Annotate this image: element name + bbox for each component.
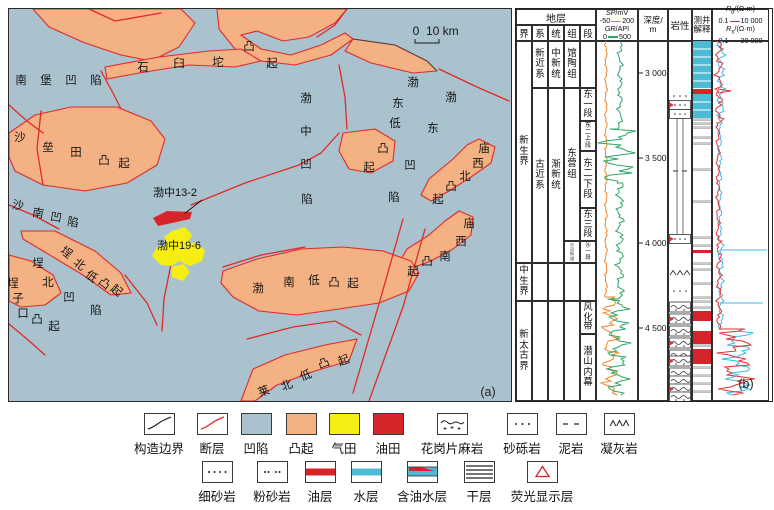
era-label: 新生界	[519, 136, 529, 168]
well-log-panel-b: 地层 界 系 统 组 段 SP/mV -50200 GR/API 0500 深度…	[515, 8, 773, 402]
map-label-char: 西	[455, 236, 467, 248]
legend-swatch-gneiss	[437, 413, 468, 435]
map-label-char: 西	[472, 158, 484, 170]
map-label-char: 起	[407, 265, 419, 278]
header-system: 系	[532, 25, 548, 41]
map-label-char: 凸	[445, 181, 457, 193]
member-label: 潜山内幕	[583, 347, 593, 389]
map-label-char: 庙	[463, 216, 475, 230]
map-label-char: 北	[459, 170, 471, 183]
map-label-char: 埕	[32, 257, 44, 270]
map-label-char: 北	[42, 276, 54, 289]
panel-a-label: (a)	[480, 385, 495, 399]
map-label-char: 田	[70, 147, 82, 159]
header-sp-gr: SP/mV -50200 GR/API 0500	[596, 9, 638, 41]
map-label-char: 堡	[40, 73, 52, 87]
map-label-char: 陷	[90, 73, 102, 87]
formation-cell: 东营组	[564, 88, 580, 241]
era-cell: 中生界	[516, 263, 532, 301]
formation-cell	[564, 301, 580, 401]
era-label: 新太古界	[519, 330, 529, 372]
era-cell: 新生界	[516, 41, 532, 263]
map-label-char: 渤	[300, 92, 312, 105]
member-cell	[580, 41, 596, 88]
depth-track-cell	[638, 41, 668, 401]
header-depth: 深度/ m	[638, 9, 668, 41]
series-cell: 渐新统	[548, 88, 564, 263]
map-label-char: 起	[266, 57, 278, 70]
series-cell	[548, 263, 564, 301]
member-cell: 潜山内幕	[580, 334, 596, 401]
member-label: 东二下段	[583, 159, 593, 201]
era-cell: 新太古界	[516, 301, 532, 401]
system-cell	[532, 263, 548, 301]
member-cell	[580, 263, 596, 301]
header-formation: 组	[564, 25, 580, 41]
member-cell: 沙一段	[580, 241, 596, 263]
map-label-char: 起	[347, 277, 359, 290]
map-label-char: 石	[137, 62, 149, 74]
series-label: 渐新统	[551, 160, 561, 192]
scale-ten-km: 10 km	[426, 24, 459, 38]
map-label-char: 陷	[388, 190, 400, 204]
map-label-char: 凹	[63, 292, 75, 304]
interpretation-track-cell	[692, 41, 712, 401]
member-cell: 东二上段	[580, 121, 596, 151]
map-label-char: 南	[439, 249, 451, 263]
map-label-char: 凸	[421, 256, 433, 268]
panel-b-label: (b)	[724, 377, 768, 391]
map-label-char: 凸	[243, 41, 255, 53]
map-label-char: 低	[308, 274, 320, 287]
legend-swatch-dryband	[464, 461, 495, 483]
header-series: 统	[548, 25, 564, 41]
series-cell: 中新统	[548, 41, 564, 88]
sp-gr-track-cell	[596, 41, 638, 401]
formation-cell: 馆陶组	[564, 41, 580, 88]
map-label-char: 陷	[301, 192, 313, 206]
map-label-char: 渤	[407, 76, 419, 89]
map-label-char: 凸	[328, 277, 340, 289]
series-cell	[548, 301, 564, 401]
era-label: 中生界	[519, 266, 529, 298]
scale-zero: 0	[413, 24, 420, 38]
legend-item: 荧光显示层	[494, 461, 590, 505]
map-label-char: 凹	[49, 211, 62, 225]
member-label: 沙一段	[585, 243, 591, 261]
legend-label: 凝灰岩	[571, 438, 667, 457]
member-cell: 风化带	[580, 301, 596, 334]
map-label-char: 庙	[478, 141, 490, 155]
map-label-char: 凹	[404, 160, 416, 172]
map-label-char: 南	[15, 73, 27, 87]
formation-cell: 沙河街组	[564, 241, 580, 263]
system-cell	[532, 301, 548, 401]
member-cell: 东三段	[580, 208, 596, 241]
member-label: 东三段	[583, 210, 593, 239]
header-member: 段	[580, 25, 596, 41]
map-label-char: 子	[12, 292, 24, 305]
legend-label: 荧光显示层	[494, 486, 590, 505]
map-label-char: 口	[17, 308, 29, 320]
map-label-char: 凸	[377, 143, 389, 155]
map-label-char: 凸	[98, 155, 110, 167]
map-label-char: 渤	[252, 282, 264, 295]
formation-cell	[564, 263, 580, 301]
lithology-track-cell	[668, 41, 692, 401]
member-cell: 东二下段	[580, 151, 596, 208]
member-label: 风化带	[583, 303, 593, 332]
system-label: 新近系	[535, 49, 545, 81]
map-label-char: 凹	[65, 75, 77, 87]
figure: 南堡凹陷石臼坨凸起沙垒田凸起沙南凹陷渤中凹陷渤东低凸起渤东凹陷庙西北凸起庙西南凸…	[0, 0, 774, 510]
map-label-char: 中	[300, 125, 312, 138]
member-label: 东一段	[583, 90, 593, 119]
legend-swatch-fill-oil	[373, 413, 404, 435]
legend-swatch-fluor	[527, 461, 558, 483]
map-label-char: 埕	[8, 277, 19, 290]
header-interpretation: 测井 解释	[692, 9, 712, 41]
system-cell: 古近系	[532, 88, 548, 263]
formation-label: 馆陶组	[567, 49, 577, 81]
header-lithology: 岩性	[668, 9, 692, 41]
member-cell: 东一段	[580, 88, 596, 121]
member-label: 东二上段	[585, 123, 592, 149]
map-label-char: 沙	[14, 131, 26, 144]
map-label-char: 低	[389, 117, 401, 130]
header-resistivity: Rd/(Ω·m) 0.110 000 Rs/(Ω·m) 0.120 000	[712, 9, 769, 41]
map-label-char: 起	[363, 161, 375, 174]
map-label-char: 凹	[300, 159, 312, 171]
system-cell: 新近系	[532, 41, 548, 88]
map-label-char: 起	[48, 320, 60, 333]
series-label: 中新统	[551, 49, 561, 81]
map-label-char: 渤	[445, 91, 457, 104]
map-label-char: 起	[118, 157, 130, 170]
legend-swatch-carets	[604, 413, 635, 435]
field-label: 渤中19-6	[157, 239, 201, 252]
field-label: 渤中13-2	[153, 186, 197, 199]
map-label-char: 垒	[42, 141, 54, 154]
header-strata: 地层	[516, 9, 596, 25]
formation-label: 沙河街组	[570, 243, 574, 261]
resistivity-track-cell	[712, 41, 769, 401]
map-label-char: 东	[392, 97, 404, 110]
header-era: 界	[516, 25, 532, 41]
legend-item: 凝灰岩	[571, 413, 667, 457]
map-label-char: 坨	[212, 55, 224, 69]
system-label: 古近系	[535, 160, 545, 192]
map-label-char: 南	[283, 275, 295, 289]
map-label-char: 陷	[90, 303, 102, 317]
formation-label: 东营组	[567, 149, 577, 181]
map-label-char: 东	[427, 122, 439, 135]
structural-map-panel-a: 南堡凹陷石臼坨凸起沙垒田凸起沙南凹陷渤中凹陷渤东低凸起渤东凹陷庙西北凸起庙西南凸…	[8, 8, 512, 402]
map-label-char: 凸	[31, 314, 43, 326]
map-label-char: 起	[432, 193, 444, 206]
map-label-char: 臼	[173, 56, 185, 70]
